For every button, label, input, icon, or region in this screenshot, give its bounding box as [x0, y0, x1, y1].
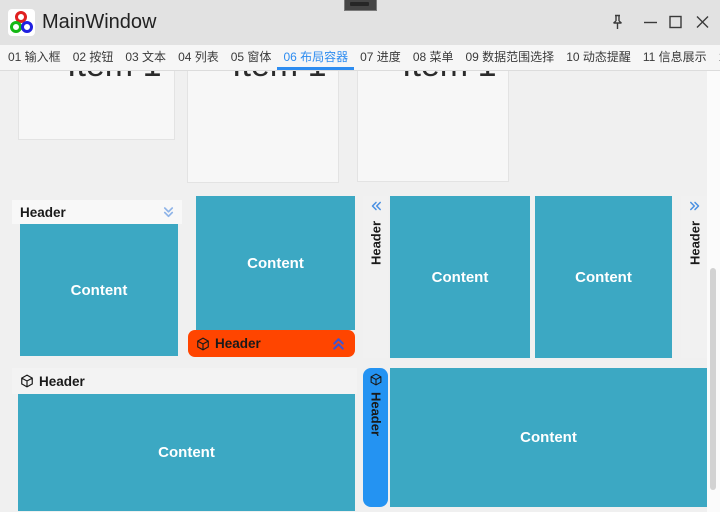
tab-input[interactable]: 01 输入框 [2, 45, 67, 70]
collapse-content: Content [196, 196, 355, 330]
collapse-header-top[interactable]: Header [12, 200, 182, 224]
tab-list[interactable]: 04 列表 [172, 45, 225, 70]
list-item[interactable]: Item 1 [187, 71, 339, 183]
cube-icon [196, 337, 210, 351]
item-label: Item 1 [19, 71, 174, 88]
app-logo-icon [8, 9, 35, 36]
close-icon[interactable] [688, 8, 716, 36]
collapse-content: Content [20, 224, 178, 356]
scrollbar-thumb[interactable] [710, 268, 716, 490]
window-drag-handle[interactable] [344, 0, 377, 11]
header-label: Header [687, 221, 702, 265]
content-label: Content [247, 255, 304, 272]
pin-icon[interactable] [603, 8, 631, 36]
collapse-content: Content [535, 196, 672, 358]
tab-info-display[interactable]: 11 信息展示 [637, 45, 713, 70]
tab-data-range[interactable]: 09 数据范围选择 [460, 45, 561, 70]
header-label: Header [215, 336, 261, 351]
double-chevron-right-icon[interactable] [688, 199, 702, 218]
header-label: Header [39, 374, 85, 389]
category-tab-bar: 01 输入框 02 按钮 03 文本 04 列表 05 窗体 06 布局容器 0… [0, 45, 720, 71]
collapse-header-top-wide[interactable]: Header [12, 368, 357, 394]
maximize-icon[interactable] [661, 8, 689, 36]
content-label: Content [71, 282, 128, 299]
list-item[interactable]: Item 1 [18, 71, 175, 140]
tab-text[interactable]: 03 文本 [119, 45, 172, 70]
content-label: Content [432, 269, 489, 286]
window-title: MainWindow [42, 0, 156, 45]
tab-layout-container[interactable]: 06 布局容器 [277, 45, 354, 70]
item-label: Item 1 [358, 71, 508, 88]
content-label: Content [575, 269, 632, 286]
content-label: Content [158, 444, 215, 461]
header-label: Header [368, 221, 383, 265]
tab-window[interactable]: 05 窗体 [225, 45, 278, 70]
tab-dynamic-reminder[interactable]: 10 动态提醒 [560, 45, 637, 70]
cube-icon [369, 373, 382, 391]
main-window: MainWindow 01 输入框 02 按钮 03 文本 04 列表 05 窗… [0, 0, 720, 512]
tab-progress[interactable]: 07 进度 [354, 45, 407, 70]
collapse-content: Content [390, 368, 707, 507]
item-label: Item 1 [188, 71, 338, 88]
tab-menu[interactable]: 08 菜单 [407, 45, 460, 70]
collapse-header-bottom[interactable]: Header [188, 330, 355, 357]
double-chevron-left-icon[interactable] [369, 199, 383, 218]
double-chevron-up-icon[interactable] [330, 335, 347, 352]
vertical-scrollbar[interactable] [707, 71, 720, 512]
collapse-header-left[interactable]: Header [363, 196, 388, 358]
double-chevron-down-icon[interactable] [161, 205, 176, 220]
content-label: Content [520, 429, 577, 446]
minimize-icon[interactable] [636, 8, 664, 36]
header-label: Header [368, 392, 383, 436]
collapse-content: Content [390, 196, 530, 358]
collapse-header-left-blue[interactable]: Header [363, 368, 388, 507]
header-label: Header [20, 205, 66, 220]
tab-uncategorized[interactable]: 12 未分类 [713, 45, 720, 70]
collapse-content: Content [18, 394, 355, 511]
demo-content-area: Item 1 Item 1 Item 1 Header Content Cont… [0, 71, 720, 512]
title-bar[interactable]: MainWindow [0, 0, 720, 45]
cube-icon [20, 374, 34, 388]
tab-button[interactable]: 02 按钮 [67, 45, 120, 70]
collapse-header-right[interactable]: Header [681, 196, 708, 358]
list-item[interactable]: Item 1 [357, 71, 509, 182]
